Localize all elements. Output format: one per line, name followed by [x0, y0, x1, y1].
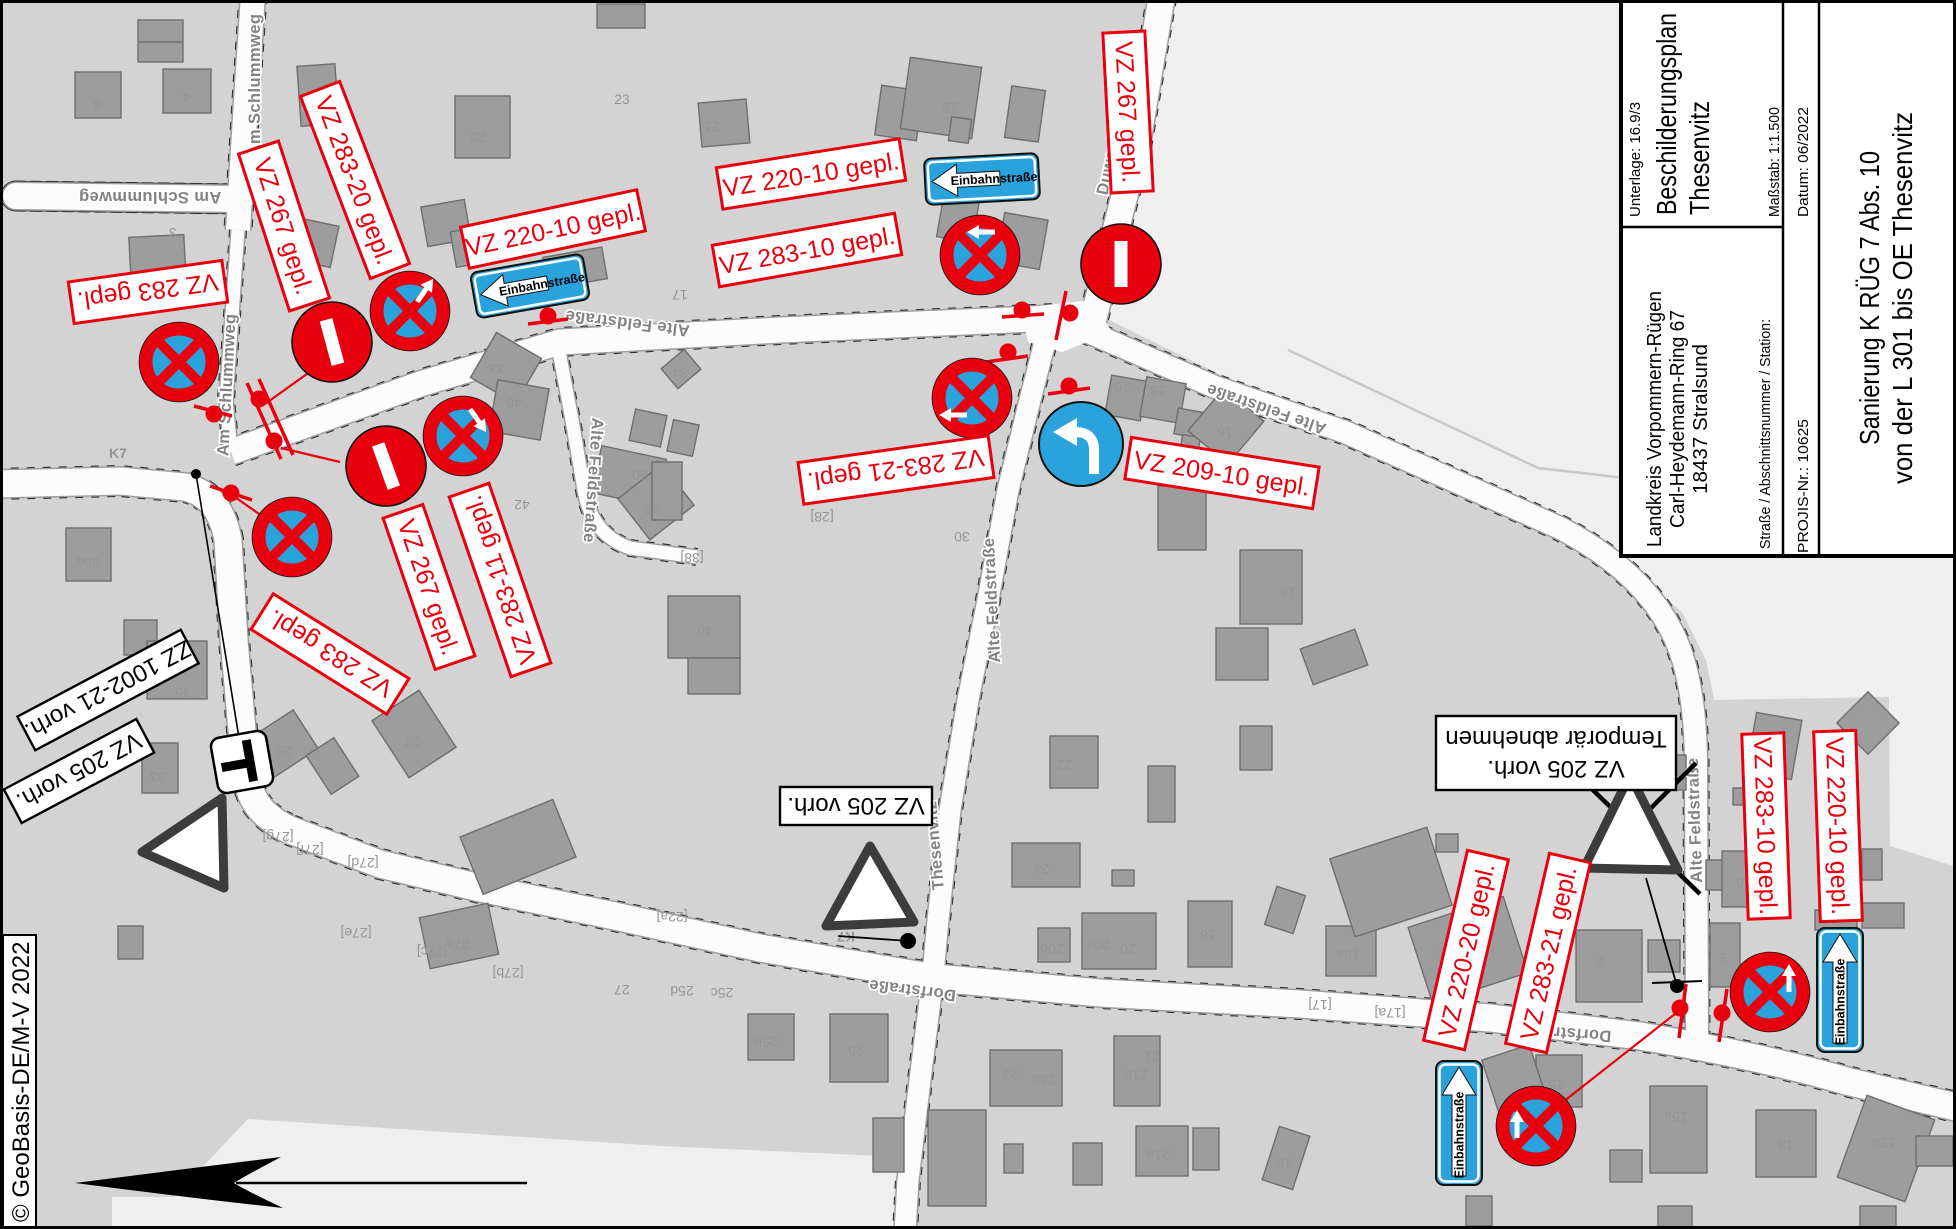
svg-text:[27f]: [27f] — [296, 842, 323, 858]
svg-text:17: 17 — [672, 287, 688, 303]
svg-text:Unterlage: 16.9/3: Unterlage: 16.9/3 — [1627, 102, 1644, 217]
svg-text:18: 18 — [1200, 927, 1216, 943]
svg-text:K7: K7 — [109, 445, 127, 461]
svg-text:Beschilderungsplan: Beschilderungsplan — [1651, 13, 1682, 215]
svg-text:Thesenvitz: Thesenvitz — [1684, 101, 1715, 215]
svg-text:Carl-Heydemann-Ring 67: Carl-Heydemann-Ring 67 — [1667, 310, 1689, 528]
svg-text:20b: 20b — [1040, 941, 1064, 957]
svg-text:PROJIS-Nr.: 10625: PROJIS-Nr.: 10625 — [1795, 419, 1812, 553]
svg-text:26: 26 — [276, 743, 292, 759]
svg-text:Landkreis Vorpommern-Rügen: Landkreis Vorpommern-Rügen — [1644, 291, 1666, 547]
svg-text:VZ 205 vorh.: VZ 205 vorh. — [1487, 755, 1624, 782]
svg-text:42: 42 — [514, 497, 530, 513]
svg-text:20: 20 — [1120, 941, 1136, 957]
svg-text:Datum: 06/2022: Datum: 06/2022 — [1795, 107, 1812, 217]
svg-text:Straße / Abschnittsnummer / St: Straße / Abschnittsnummer / Station: — [1757, 319, 1774, 549]
svg-text:21: 21 — [704, 119, 720, 135]
svg-text:24: 24 — [404, 734, 420, 750]
svg-text:25: 25 — [848, 1043, 864, 1059]
svg-text:[27d]: [27d] — [347, 855, 378, 871]
svg-text:[27b]: [27b] — [492, 965, 523, 981]
svg-text:23: 23 — [1002, 1067, 1018, 1083]
svg-text:13a: 13a — [1872, 1135, 1896, 1151]
svg-text:21: 21 — [1144, 1049, 1160, 1065]
svg-text:36: 36 — [644, 501, 660, 517]
svg-text:Sanierung K RÜG 7 Abs. 10: Sanierung K RÜG 7 Abs. 10 — [1854, 151, 1885, 445]
svg-text:20a: 20a — [1086, 937, 1110, 953]
svg-text:von der L 301 bis OE Thesenvit: von der L 301 bis OE Thesenvitz — [1887, 112, 1918, 484]
svg-text:[22a]: [22a] — [656, 909, 687, 925]
svg-text:23a: 23a — [1032, 1072, 1056, 1088]
svg-text:2: 2 — [1596, 955, 1604, 971]
svg-text:27: 27 — [614, 982, 630, 998]
svg-text:[27c]: [27c] — [417, 944, 447, 960]
svg-text:[38]: [38] — [680, 550, 703, 566]
svg-text:46: 46 — [506, 395, 522, 411]
svg-text:27a: 27a — [446, 937, 470, 953]
svg-text:3: 3 — [169, 225, 177, 241]
svg-text:35: 35 — [175, 685, 191, 701]
svg-text:VZ 205 vorh.: VZ 205 vorh. — [787, 792, 924, 819]
svg-text:33: 33 — [150, 769, 166, 785]
svg-text:14: 14 — [1280, 585, 1296, 601]
svg-text:4: 4 — [182, 90, 190, 106]
svg-text:34: 34 — [672, 365, 688, 381]
svg-text:22: 22 — [1056, 757, 1072, 773]
svg-text:24: 24 — [1034, 861, 1050, 877]
svg-text:Temporär abnehmen: Temporär abnehmen — [1445, 725, 1666, 752]
svg-text:21b: 21b — [1124, 1067, 1148, 1083]
svg-text:23: 23 — [614, 91, 630, 107]
svg-text:15: 15 — [942, 100, 958, 116]
svg-text:35a: 35a — [76, 555, 100, 571]
svg-text:1b: 1b — [1276, 1155, 1292, 1171]
svg-text:15a: 15a — [1664, 1109, 1688, 1125]
svg-text:50: 50 — [632, 467, 648, 483]
svg-text:© GeoBasis-DE/M-V 2022: © GeoBasis-DE/M-V 2022 — [8, 942, 35, 1222]
svg-text:13: 13 — [1778, 1137, 1794, 1153]
svg-text:3: 3 — [1720, 950, 1728, 966]
svg-text:[17]: [17] — [1308, 997, 1331, 1013]
svg-text:[27g]: [27g] — [262, 829, 293, 845]
svg-text:21a: 21a — [1146, 1147, 1170, 1163]
svg-text:[27e]: [27e] — [340, 925, 371, 941]
svg-text:[28]: [28] — [810, 509, 833, 525]
svg-text:25d: 25d — [670, 983, 693, 999]
svg-text:18437 Stralsund: 18437 Stralsund — [1690, 344, 1712, 494]
svg-text:[17a]: [17a] — [1374, 1005, 1405, 1021]
svg-text:18a: 18a — [1336, 947, 1360, 963]
svg-text:Am Schlummweg: Am Schlummweg — [246, 14, 264, 157]
svg-text:Am Schlummweg: Am Schlummweg — [79, 188, 222, 206]
svg-text:33: 33 — [489, 361, 505, 377]
svg-text:Maßstab: 1:1.500: Maßstab: 1:1.500 — [1766, 107, 1783, 217]
svg-text:6: 6 — [93, 97, 101, 113]
svg-text:18: 18 — [1150, 383, 1166, 399]
svg-text:40: 40 — [697, 622, 713, 638]
svg-text:16: 16 — [1217, 425, 1233, 441]
svg-text:20: 20 — [1114, 379, 1130, 395]
svg-text:25: 25 — [470, 130, 486, 146]
svg-text:25c: 25c — [711, 985, 734, 1001]
svg-text:6: 6 — [1736, 875, 1744, 891]
svg-text:30: 30 — [954, 529, 970, 545]
svg-text:25b: 25b — [754, 1034, 778, 1050]
